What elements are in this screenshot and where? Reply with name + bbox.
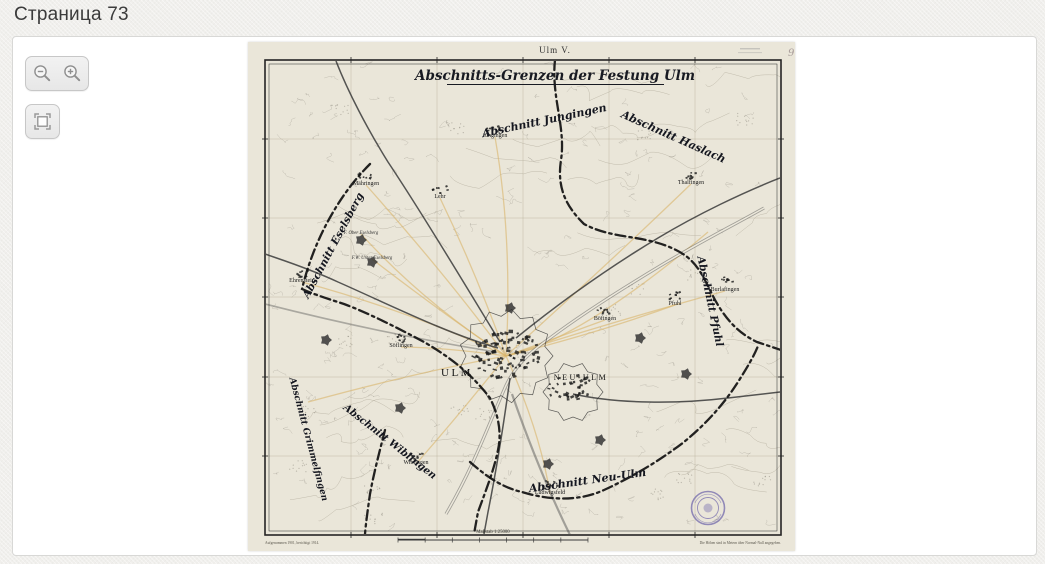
zoom-toolbar xyxy=(25,56,89,91)
map-place-label: F. Ober Eselsberg xyxy=(343,231,379,236)
map-sheet-svg: Ulm V. 9 JungingenMähringenLehrThalfinge… xyxy=(248,42,795,551)
magnifier-plus-icon xyxy=(63,64,82,83)
map-image[interactable]: Ulm V. 9 JungingenMähringenLehrThalfinge… xyxy=(248,42,795,551)
map-place-label: Lehr xyxy=(434,194,445,200)
pencil-corner-digit: 9 xyxy=(788,48,795,59)
map-viewer[interactable]: Ulm V. 9 JungingenMähringenLehrThalfinge… xyxy=(248,42,795,551)
map-place-label: NEU-ULM xyxy=(554,373,608,382)
zoom-in-button[interactable] xyxy=(59,61,85,87)
map-title: Abschnitts-Grenzen der Festung Ulm xyxy=(413,68,695,84)
map-place-label: Pfuhl xyxy=(668,300,681,307)
magnifier-minus-icon xyxy=(33,64,52,83)
map-place-label: F.W. Unter Eselsberg xyxy=(351,256,393,261)
footer-scale-label: Maßstab 1:25000 xyxy=(476,530,510,535)
fullscreen-button[interactable] xyxy=(25,104,60,139)
zoom-out-button[interactable] xyxy=(29,61,55,87)
map-place-label: Mähringen xyxy=(353,181,379,187)
footer-right-note: Die Höhen sind in Metern über Normal-Nul… xyxy=(700,541,782,545)
fullscreen-icon xyxy=(32,111,53,132)
map-place-label: Söflingen xyxy=(389,342,412,349)
page-title: Страница 73 xyxy=(14,4,129,26)
map-place-label: Böfingen xyxy=(594,315,616,322)
viewer-panel: Ulm V. 9 JungingenMähringenLehrThalfinge… xyxy=(12,36,1037,556)
sheet-label: Ulm V. xyxy=(539,45,571,55)
map-place-label: Thalfingen xyxy=(678,179,704,186)
